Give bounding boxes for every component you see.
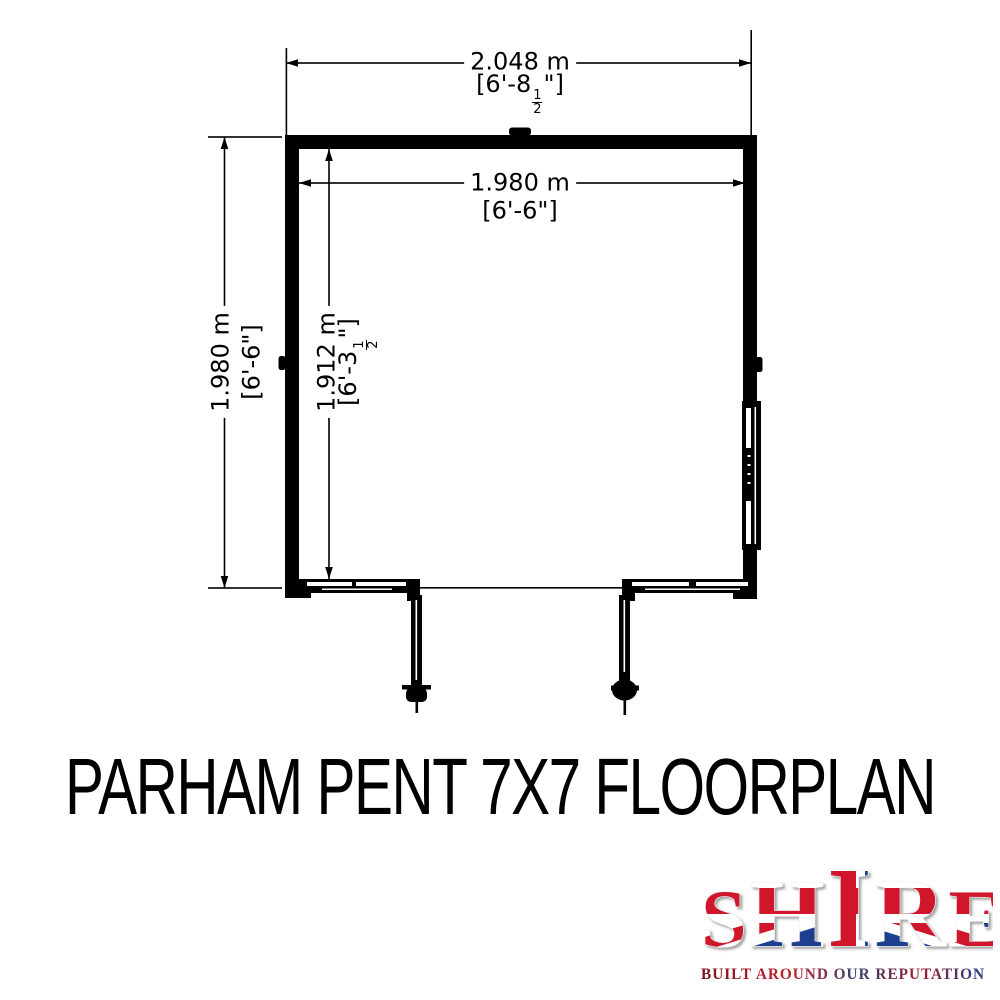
dimension-arrow: [325, 149, 333, 161]
door-threshold-line: [420, 587, 622, 589]
wall-marker-left: [279, 356, 286, 370]
door-leaf-right-line: [624, 600, 626, 672]
label-inner-depth-imperial: [6'-312"]: [336, 312, 380, 412]
extension-line: [208, 136, 282, 138]
door-frame-detail: [645, 589, 740, 591]
logo-letter-r: R: [875, 860, 949, 968]
dimension-arrow: [221, 576, 229, 588]
door-leaf-left-line: [416, 600, 418, 680]
door-frame-detail: [632, 582, 689, 586]
door-leaf-right: [611, 595, 639, 715]
window-pane-top: [746, 408, 751, 448]
logo-brand-text: SHIRE: [701, 844, 993, 971]
shire-logo: SHIRE BUILT AROUND OUR REPUTATION: [693, 836, 993, 994]
door-frame-detail: [322, 589, 392, 591]
logo-letter-s: S: [701, 873, 750, 964]
door-right-stub: [624, 699, 627, 715]
door-frame-detail: [696, 582, 748, 586]
extension-line: [208, 587, 282, 589]
label-outer-depth-imperial: [6'-6"]: [239, 318, 264, 406]
window-block: [742, 401, 761, 550]
wall-top: [285, 135, 757, 149]
dimension-arrow: [739, 59, 751, 67]
imperial-prefix: [6'-8: [476, 70, 531, 98]
dimension-arrow: [286, 59, 298, 67]
wall-marker-right: [755, 357, 763, 372]
window-mullion-tick: [748, 464, 751, 466]
page-title: PARHAM PENT 7X7 FLOORPLAN: [65, 741, 935, 833]
fraction-numerator: 1: [353, 340, 366, 348]
logo-letter-e: E: [948, 873, 993, 964]
door-left-handle: [406, 688, 427, 702]
window-pane-bottom: [746, 501, 751, 544]
imperial-prefix: [6'-3: [334, 351, 362, 406]
page: 2.048 m [6'-812"] 1.980 m [6'-6"] 1.980 …: [0, 0, 1000, 1000]
label-outer-width-imperial: [6'-812"]: [470, 72, 570, 116]
window-mullion-tick: [748, 455, 751, 457]
logo-tagline: BUILT AROUND OUR REPUTATION: [701, 966, 985, 983]
window-mullion-tick: [748, 482, 751, 484]
dimension-arrow: [221, 137, 229, 149]
logo-letter-i: I: [827, 844, 874, 971]
dimension-arrow: [325, 567, 333, 579]
extension-line: [286, 48, 288, 135]
door-right-handle: [612, 680, 637, 701]
label-inner-width-imperial: [6'-6"]: [476, 198, 564, 223]
window-glazing-line: [755, 407, 757, 544]
fraction-denominator: 2: [366, 339, 380, 349]
label-outer-depth-metric: 1.980 m: [208, 306, 233, 418]
dimension-arrow: [299, 179, 311, 187]
corner-block-left: [285, 579, 311, 598]
wall-marker-top: [509, 128, 531, 136]
fraction: 12: [353, 339, 380, 349]
wall-left: [285, 135, 299, 593]
fraction-numerator: 1: [533, 89, 541, 102]
door-left-stub: [416, 700, 419, 713]
floorplan: [208, 30, 763, 715]
imperial-suffix: "]: [334, 318, 362, 338]
door-frame-detail: [307, 582, 352, 586]
window-right: [742, 401, 761, 550]
fraction-denominator: 2: [532, 102, 542, 116]
door-leaf-left: [402, 595, 431, 713]
extension-line: [750, 30, 752, 135]
door-frame-detail: [356, 582, 406, 586]
label-inner-width-metric: 1.980 m: [464, 170, 576, 195]
imperial-suffix: "]: [544, 70, 564, 98]
window-mullion-tick: [748, 473, 751, 475]
logo-letter-h: H: [750, 860, 828, 967]
fraction: 12: [532, 89, 542, 116]
